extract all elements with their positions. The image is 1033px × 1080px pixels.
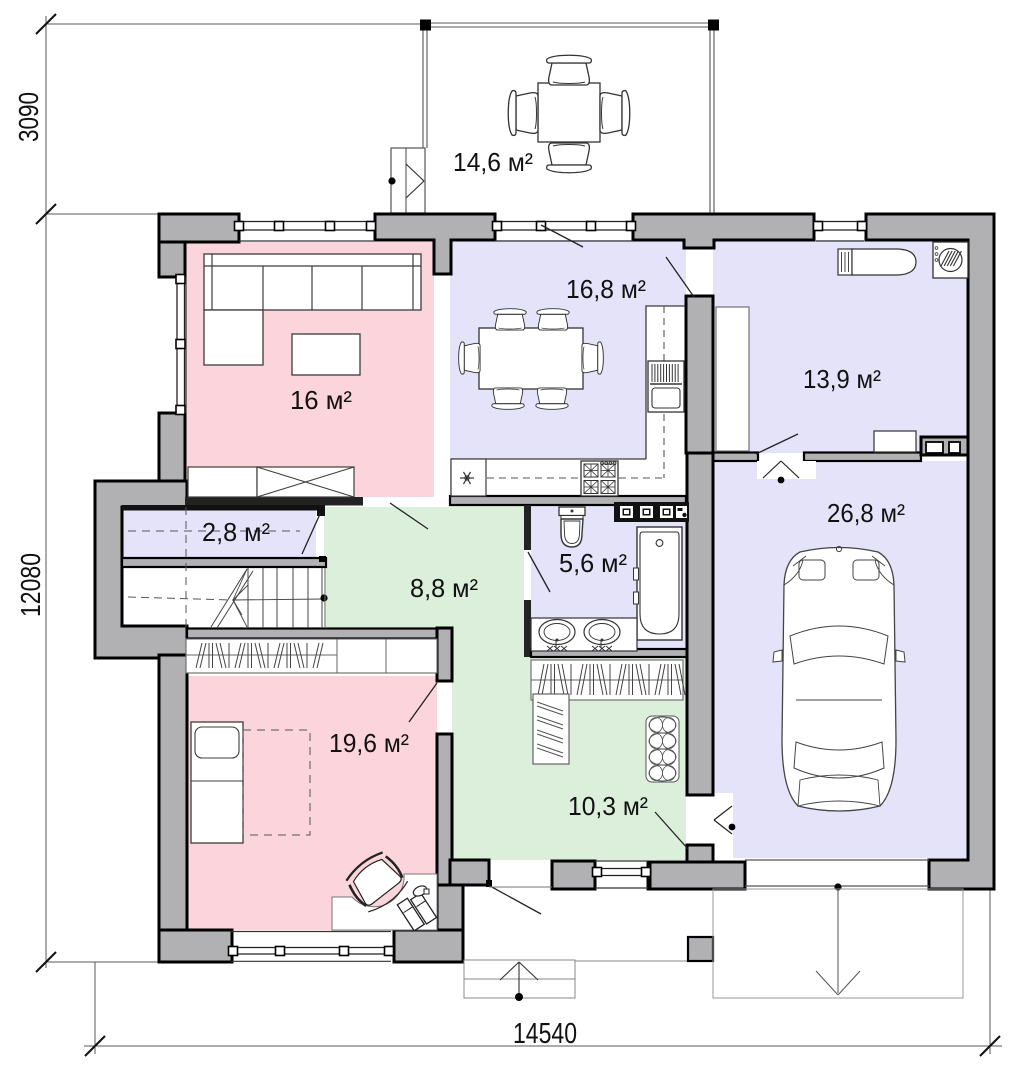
svg-text:12080: 12080 — [15, 553, 46, 617]
svg-text:14540: 14540 — [513, 1018, 577, 1050]
svg-text:8,8 м²: 8,8 м² — [410, 573, 478, 603]
svg-text:16 м²: 16 м² — [290, 385, 352, 415]
svg-text:14,6 м²: 14,6 м² — [453, 147, 533, 177]
svg-text:5,6 м²: 5,6 м² — [559, 548, 627, 578]
svg-text:3090: 3090 — [13, 92, 44, 142]
svg-text:10,3 м²: 10,3 м² — [568, 791, 648, 821]
svg-text:19,6 м²: 19,6 м² — [329, 728, 409, 758]
svg-text:26,8 м²: 26,8 м² — [827, 498, 905, 528]
svg-text:2,8 м²: 2,8 м² — [202, 517, 270, 547]
svg-text:16,8 м²: 16,8 м² — [566, 274, 646, 304]
svg-text:13,9 м²: 13,9 м² — [803, 364, 881, 394]
